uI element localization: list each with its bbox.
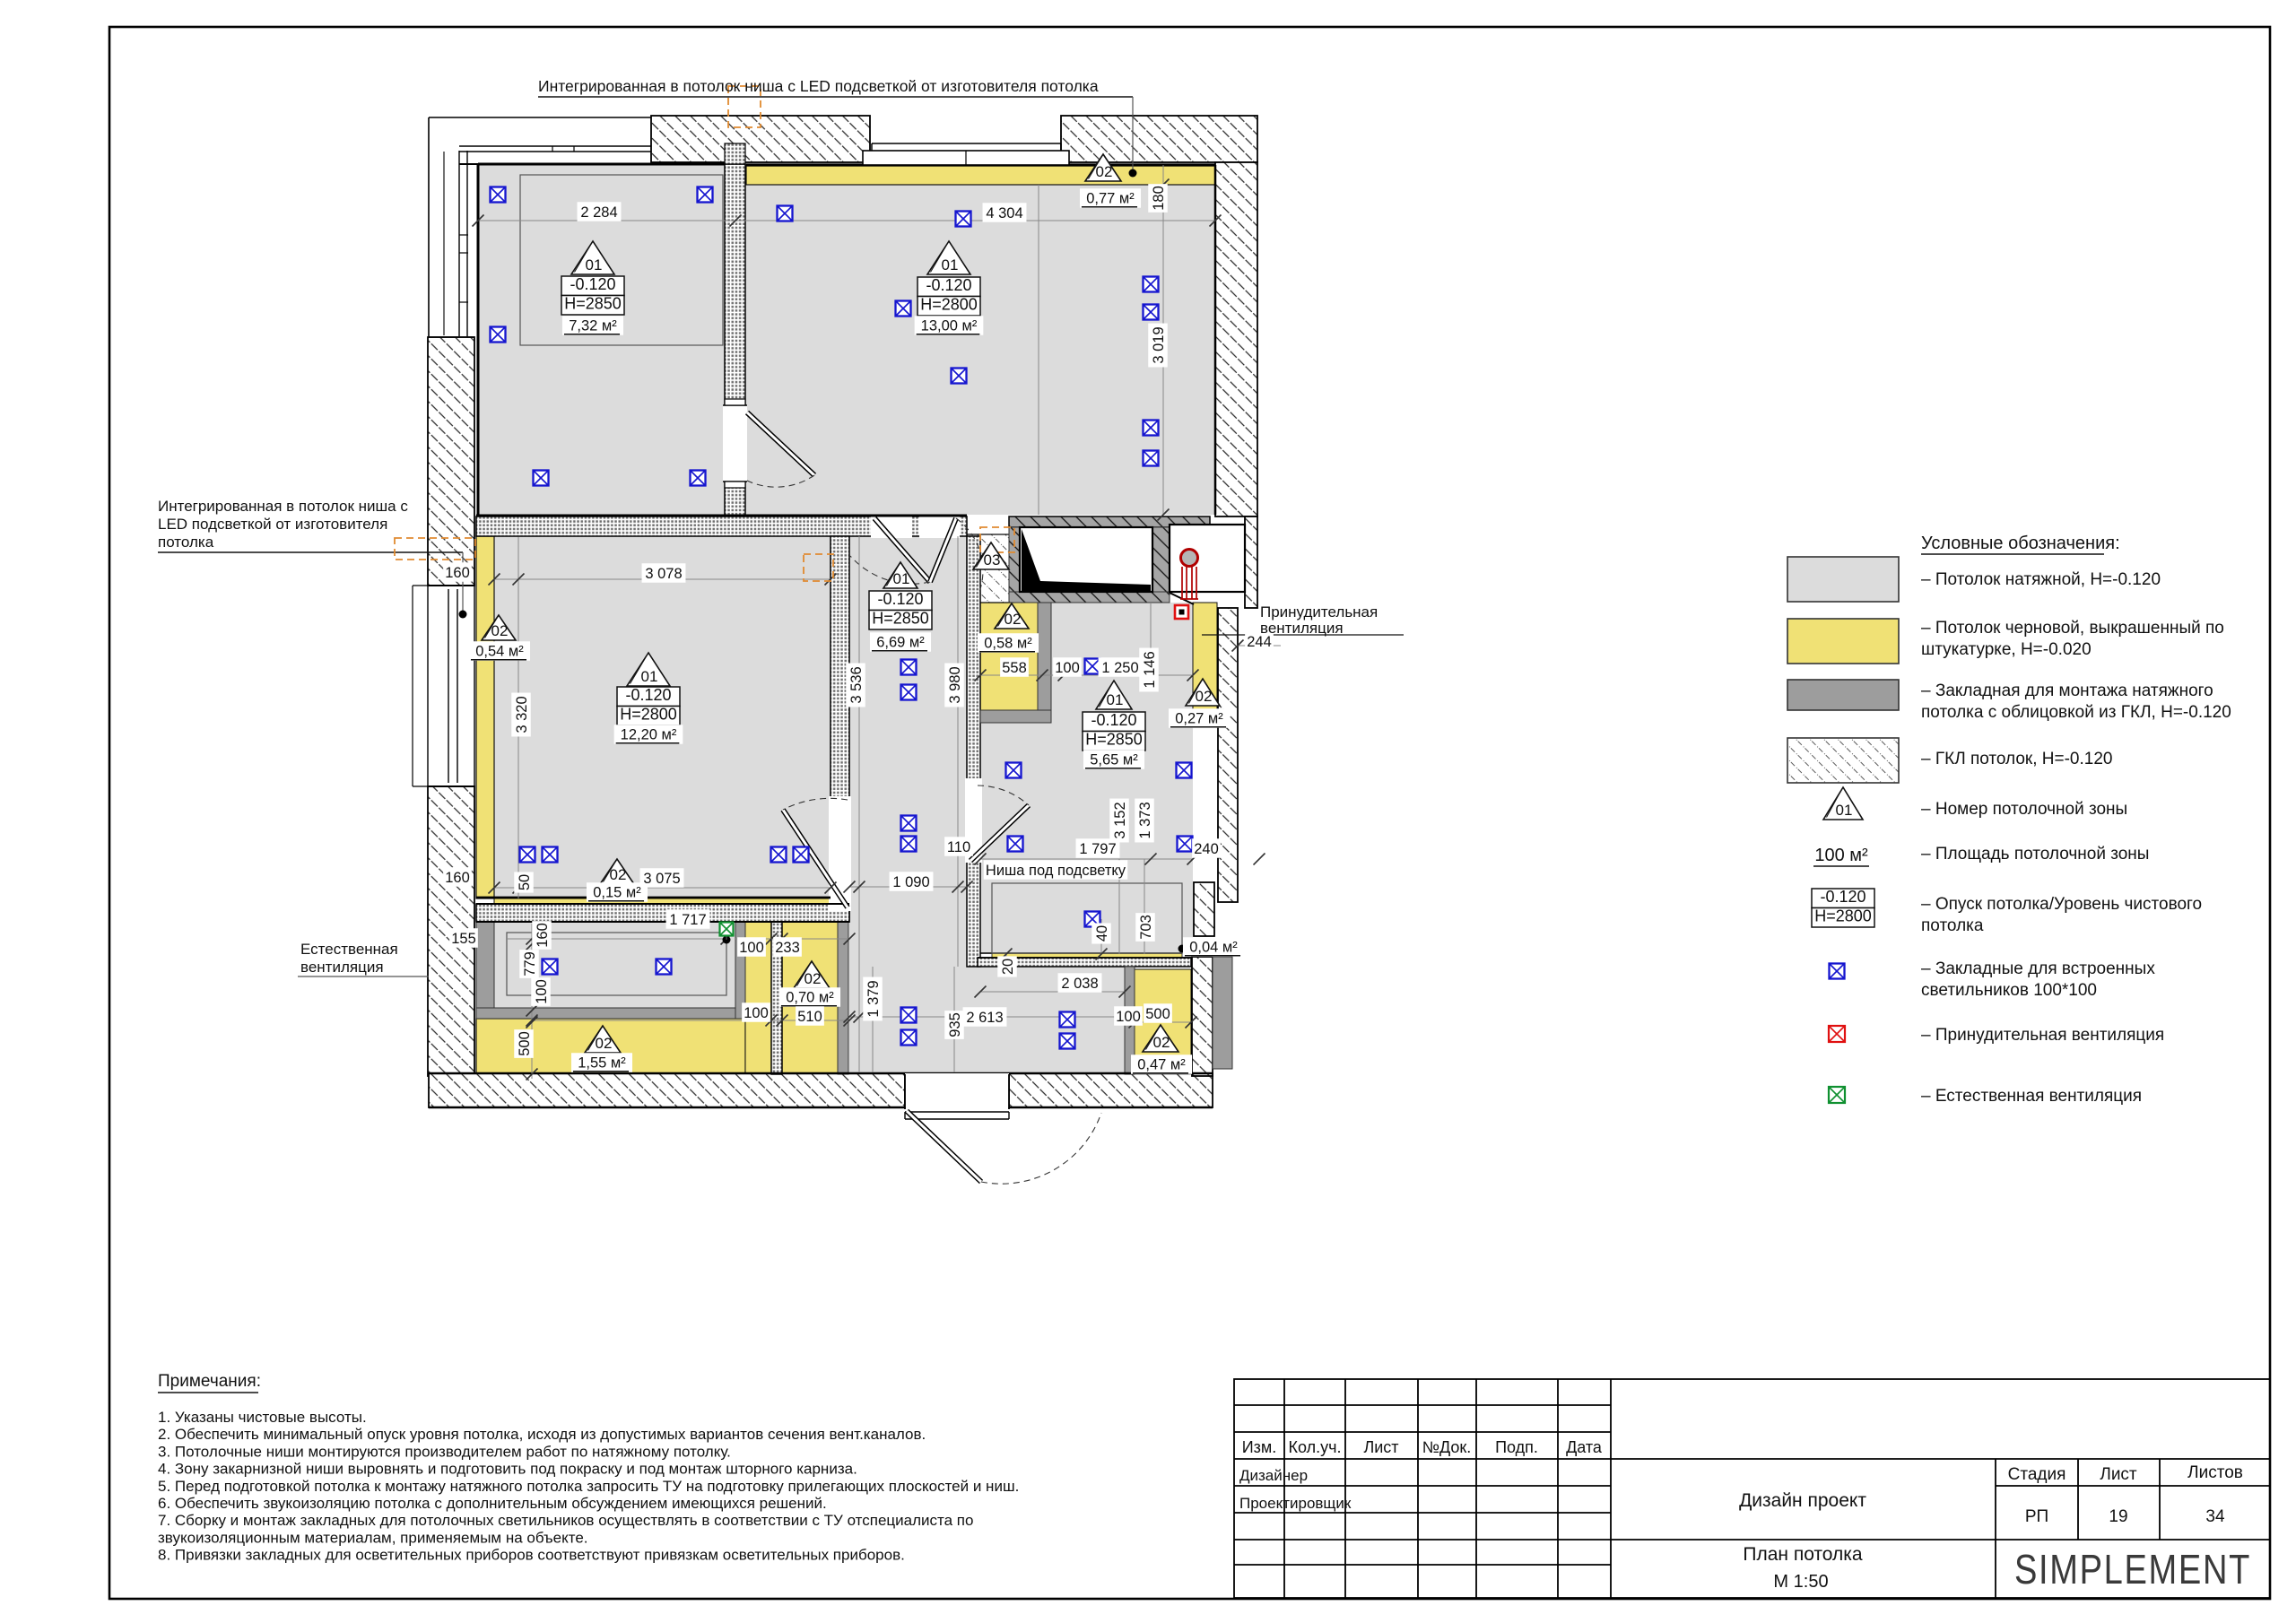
- svg-text:7. Сборку и монтаж закладных д: 7. Сборку и монтаж закладных для потолоч…: [158, 1512, 973, 1529]
- svg-text:1 379: 1 379: [865, 980, 882, 1017]
- svg-text:звукоизоляционным материалам,: звукоизоляционным материалам, применяемы…: [158, 1529, 588, 1546]
- svg-text:3 078: 3 078: [645, 566, 682, 582]
- svg-text:110: 110: [947, 839, 970, 855]
- svg-text:Лист: Лист: [2100, 1465, 2137, 1484]
- svg-text:– Потолок черновой, выкрашенны: – Потолок черновой, выкрашенный по: [1921, 619, 2224, 638]
- svg-text:светильников 100*100: светильников 100*100: [1921, 981, 2097, 1000]
- svg-text:100 м²: 100 м²: [1814, 846, 1868, 865]
- svg-text:6. Обеспечить звукоизоляцию по: 6. Обеспечить звукоизоляцию потолка с до…: [158, 1495, 827, 1512]
- svg-text:03: 03: [984, 551, 1001, 568]
- svg-text:-0.120: -0.120: [1820, 888, 1865, 906]
- svg-text:2 038: 2 038: [1061, 976, 1098, 992]
- svg-text:01: 01: [641, 668, 658, 685]
- svg-text:H=2850: H=2850: [1085, 731, 1143, 749]
- svg-text:02: 02: [804, 970, 822, 987]
- svg-text:1 797: 1 797: [1079, 841, 1116, 857]
- svg-text:100: 100: [744, 1005, 769, 1021]
- svg-text:5,65 м²: 5,65 м²: [1090, 751, 1138, 768]
- svg-text:1. Указаны чистовые высоты.: 1. Указаны чистовые высоты.: [158, 1409, 367, 1426]
- svg-text:02: 02: [610, 866, 627, 883]
- svg-text:3 152: 3 152: [1112, 802, 1128, 838]
- svg-text:H=2850: H=2850: [564, 295, 622, 313]
- svg-text:1 373: 1 373: [1137, 802, 1153, 838]
- svg-text:-0.120: -0.120: [877, 590, 923, 608]
- svg-text:Дизайн проект: Дизайн проект: [1739, 1490, 1866, 1511]
- svg-text:Интегрированная в потолок ниша: Интегрированная в потолок ниша с: [158, 498, 408, 515]
- svg-text:Стадия: Стадия: [2008, 1465, 2066, 1484]
- svg-text:Кол.уч.: Кол.уч.: [1289, 1438, 1342, 1456]
- svg-text:4. Зону закарнизной ниши выров: 4. Зону закарнизной ниши выровнять и под…: [158, 1461, 857, 1478]
- svg-text:01: 01: [1836, 802, 1853, 819]
- svg-text:Проектировщик: Проектировщик: [1239, 1495, 1352, 1512]
- svg-text:4 304: 4 304: [986, 205, 1022, 221]
- svg-text:01: 01: [586, 256, 603, 273]
- svg-text:М 1:50: М 1:50: [1773, 1572, 1828, 1592]
- svg-text:02: 02: [1196, 688, 1213, 705]
- svg-text:H=2850: H=2850: [872, 610, 929, 628]
- svg-text:3 320: 3 320: [514, 696, 530, 733]
- svg-text:0,15 м²: 0,15 м²: [593, 884, 641, 900]
- svg-text:Изм.: Изм.: [1242, 1438, 1277, 1456]
- svg-text:Дизайнер: Дизайнер: [1239, 1467, 1308, 1484]
- svg-text:233: 233: [775, 940, 800, 956]
- svg-text:H=2800: H=2800: [620, 706, 677, 724]
- svg-text:6,69 м²: 6,69 м²: [876, 634, 925, 650]
- svg-text:2 613: 2 613: [966, 1010, 1003, 1026]
- svg-text:1 717: 1 717: [669, 912, 706, 928]
- svg-text:02: 02: [1096, 163, 1113, 180]
- svg-text:20: 20: [1000, 959, 1016, 975]
- svg-text:-0.120: -0.120: [926, 276, 971, 294]
- svg-text:02: 02: [596, 1035, 613, 1052]
- svg-text:155: 155: [451, 931, 476, 947]
- svg-text:1 250: 1 250: [1101, 660, 1138, 676]
- svg-text:Принудительная: Принудительная: [1260, 603, 1378, 621]
- svg-text:02: 02: [491, 622, 509, 639]
- svg-text:2 284: 2 284: [580, 204, 617, 221]
- svg-text:– Принудительная вентиляция: – Принудительная вентиляция: [1921, 1026, 2164, 1045]
- svg-text:3 019: 3 019: [1151, 326, 1167, 363]
- svg-text:500: 500: [1145, 1006, 1170, 1022]
- svg-text:Интегрированная в потолок ниша: Интегрированная в потолок ниша с LED под…: [538, 77, 1099, 95]
- svg-text:0,04 м²: 0,04 м²: [1189, 939, 1238, 955]
- svg-text:№Док.: №Док.: [1422, 1438, 1472, 1456]
- svg-text:Н=2800: Н=2800: [1814, 907, 1872, 925]
- svg-text:100: 100: [1116, 1009, 1141, 1025]
- svg-text:510: 510: [797, 1009, 822, 1025]
- svg-text:02: 02: [1004, 611, 1022, 628]
- svg-text:3 536: 3 536: [848, 666, 865, 703]
- svg-text:-0.120: -0.120: [570, 275, 615, 293]
- svg-text:180: 180: [1151, 186, 1167, 211]
- svg-text:100: 100: [739, 940, 764, 956]
- svg-text:2. Обеспечить минимальный опус: 2. Обеспечить минимальный опуск уровня п…: [158, 1426, 926, 1443]
- svg-text:500: 500: [517, 1031, 533, 1056]
- svg-text:-0.120: -0.120: [625, 686, 671, 704]
- svg-text:– ГКЛ потолок, Н=-0.120: – ГКЛ потолок, Н=-0.120: [1921, 750, 2112, 768]
- svg-text:160: 160: [445, 565, 470, 581]
- svg-text:3 980: 3 980: [947, 666, 963, 703]
- svg-text:потолка с облицовкой из ГКЛ, Н: потолка с облицовкой из ГКЛ, Н=-0.120: [1921, 703, 2231, 722]
- svg-text:01: 01: [942, 256, 959, 273]
- svg-text:13,00 м²: 13,00 м²: [921, 317, 978, 334]
- svg-text:935: 935: [947, 1012, 963, 1037]
- svg-text:Условные обозначения:: Условные обозначения:: [1921, 534, 2120, 553]
- svg-text:– Опуск потолка/Уровень чистов: – Опуск потолка/Уровень чистового: [1921, 895, 2202, 914]
- svg-text:0,27 м²: 0,27 м²: [1175, 710, 1223, 726]
- svg-text:0,77 м²: 0,77 м²: [1086, 190, 1135, 206]
- svg-text:H=2800: H=2800: [920, 296, 978, 314]
- svg-text:02: 02: [1153, 1034, 1170, 1051]
- svg-text:34: 34: [2205, 1507, 2225, 1526]
- svg-text:1 146: 1 146: [1142, 651, 1158, 688]
- svg-text:– Площадь потолочной зоны: – Площадь потолочной зоны: [1921, 845, 2149, 864]
- svg-text:0,54 м²: 0,54 м²: [475, 643, 524, 659]
- svg-text:01: 01: [893, 570, 910, 587]
- svg-text:160: 160: [535, 923, 551, 948]
- svg-text:3 075: 3 075: [643, 871, 680, 887]
- svg-text:100: 100: [534, 979, 550, 1004]
- svg-text:12,20 м²: 12,20 м²: [621, 726, 677, 742]
- svg-text:– Потолок натяжной, Н=-0.120: – Потолок натяжной, Н=-0.120: [1921, 570, 2161, 589]
- svg-text:160: 160: [445, 870, 470, 886]
- svg-text:1 090: 1 090: [892, 874, 929, 890]
- svg-text:– Закладная для монтажа натяжн: – Закладная для монтажа натяжного: [1921, 681, 2213, 700]
- svg-text:1,55 м²: 1,55 м²: [578, 1055, 626, 1071]
- svg-text:Листов: Листов: [2187, 1463, 2243, 1482]
- svg-text:Дата: Дата: [1566, 1438, 1603, 1456]
- svg-text:19: 19: [2109, 1507, 2127, 1526]
- svg-text:Естественная: Естественная: [300, 941, 398, 958]
- svg-text:100: 100: [1055, 660, 1080, 676]
- svg-text:240: 240: [1194, 841, 1219, 857]
- svg-text:потолка: потолка: [1921, 916, 1984, 935]
- svg-text:вентиляция: вентиляция: [1260, 620, 1344, 637]
- svg-text:8. Привязки закладных для осве: 8. Привязки закладных для осветительных …: [158, 1547, 905, 1564]
- svg-text:– Закладные для встроенных: – Закладные для встроенных: [1921, 959, 2155, 978]
- svg-text:0,47 м²: 0,47 м²: [1137, 1056, 1186, 1072]
- svg-text:LED подсветкой от изготовителя: LED подсветкой от изготовителя: [158, 516, 387, 533]
- svg-text:штукатурке, Н=-0.020: штукатурке, Н=-0.020: [1921, 640, 2092, 659]
- svg-text:0,70 м²: 0,70 м²: [786, 989, 834, 1005]
- svg-text:Подп.: Подп.: [1495, 1438, 1538, 1456]
- svg-text:01: 01: [1107, 691, 1124, 708]
- svg-text:0,58 м²: 0,58 м²: [984, 635, 1032, 651]
- svg-text:Примечания:: Примечания:: [158, 1372, 261, 1391]
- svg-text:Ниша под подсветку: Ниша под подсветку: [986, 863, 1126, 879]
- svg-text:РП: РП: [2025, 1507, 2048, 1526]
- svg-text:потолка: потолка: [158, 534, 214, 551]
- svg-text:779: 779: [522, 951, 538, 976]
- svg-text:План потолка: План потолка: [1743, 1544, 1863, 1565]
- svg-text:– Естественная вентиляция: – Естественная вентиляция: [1921, 1087, 2142, 1106]
- svg-text:– Номер потолочной зоны: – Номер потолочной зоны: [1921, 800, 2127, 819]
- svg-text:-0.120: -0.120: [1091, 711, 1136, 729]
- svg-text:40: 40: [1094, 925, 1110, 942]
- svg-text:7,32 м²: 7,32 м²: [569, 317, 617, 334]
- svg-text:SIMPLEMENT: SIMPLEMENT: [2014, 1546, 2251, 1593]
- svg-text:3. Потолочные ниши монтируются: 3. Потолочные ниши монтируются производи…: [158, 1443, 731, 1460]
- svg-text:703: 703: [1138, 915, 1154, 940]
- svg-text:558: 558: [1002, 660, 1027, 676]
- svg-text:вентиляция: вентиляция: [300, 959, 384, 976]
- svg-text:50: 50: [517, 874, 533, 890]
- svg-text:Лист: Лист: [1363, 1438, 1398, 1456]
- svg-text:5. Перед подготовкой потолка к: 5. Перед подготовкой потолка к монтажу н…: [158, 1478, 1019, 1495]
